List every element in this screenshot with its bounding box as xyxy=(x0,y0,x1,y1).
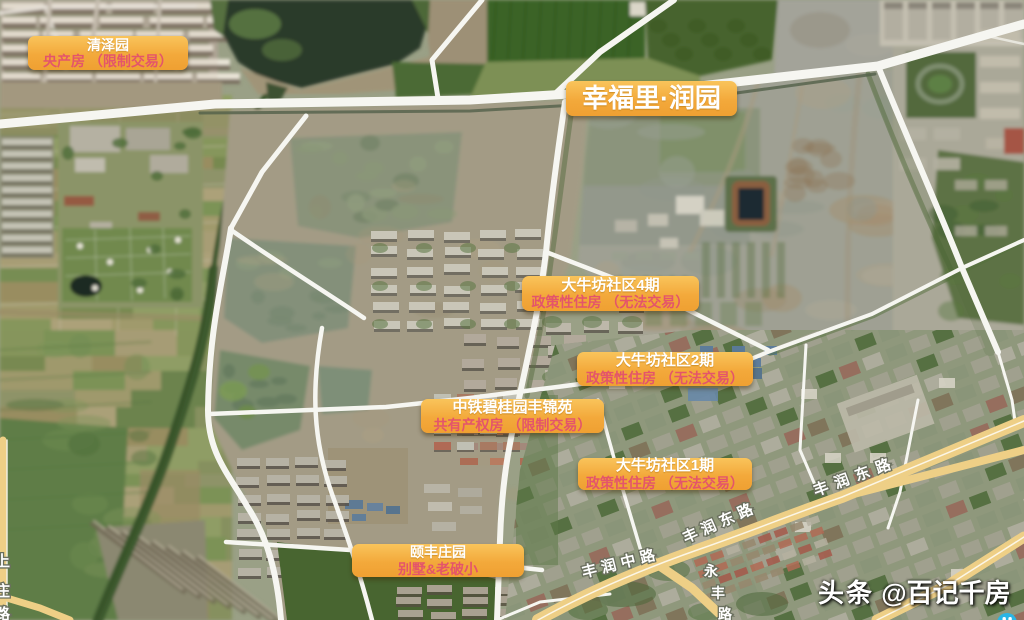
svg-text:路: 路 xyxy=(0,605,11,620)
svg-text:永: 永 xyxy=(703,563,719,579)
svg-text:上: 上 xyxy=(0,553,10,570)
svg-text:路: 路 xyxy=(718,606,733,620)
svg-text:丰: 丰 xyxy=(711,585,725,601)
svg-text:庄: 庄 xyxy=(0,582,10,600)
